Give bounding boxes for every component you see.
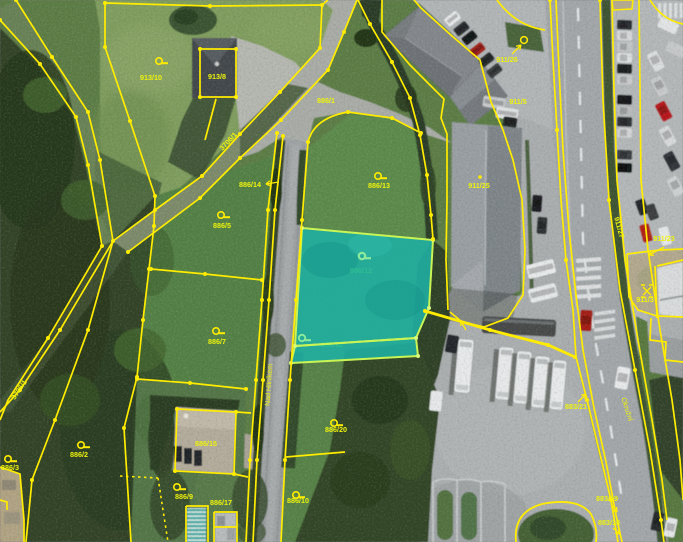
svg-text:911/23: 911/23 bbox=[653, 234, 675, 243]
svg-text:886/14: 886/14 bbox=[239, 180, 261, 189]
svg-text:886/2: 886/2 bbox=[70, 450, 88, 459]
svg-text:913/8: 913/8 bbox=[208, 72, 226, 81]
svg-text:886/3: 886/3 bbox=[1, 463, 19, 472]
svg-text:886/13: 886/13 bbox=[368, 181, 390, 190]
svg-text:886/20: 886/20 bbox=[325, 425, 347, 434]
svg-text:883/18: 883/18 bbox=[598, 518, 620, 527]
svg-text:913/10: 913/10 bbox=[140, 73, 162, 82]
svg-text:886/10: 886/10 bbox=[287, 496, 309, 505]
svg-text:883/21: 883/21 bbox=[565, 402, 587, 411]
svg-text:911/26: 911/26 bbox=[496, 55, 518, 64]
svg-text:886/7: 886/7 bbox=[208, 337, 226, 346]
svg-text:886/12: 886/12 bbox=[350, 266, 373, 275]
svg-text:911/5: 911/5 bbox=[509, 97, 527, 106]
svg-text:911/25: 911/25 bbox=[468, 181, 490, 190]
svg-text:883/19: 883/19 bbox=[596, 494, 618, 503]
svg-text:911/3: 911/3 bbox=[636, 295, 654, 304]
svg-text:886/1: 886/1 bbox=[317, 96, 335, 105]
svg-text:886/17: 886/17 bbox=[210, 498, 232, 507]
svg-text:886/9: 886/9 bbox=[175, 492, 193, 501]
svg-text:886/15: 886/15 bbox=[195, 439, 217, 448]
svg-text:886/5: 886/5 bbox=[213, 221, 231, 230]
